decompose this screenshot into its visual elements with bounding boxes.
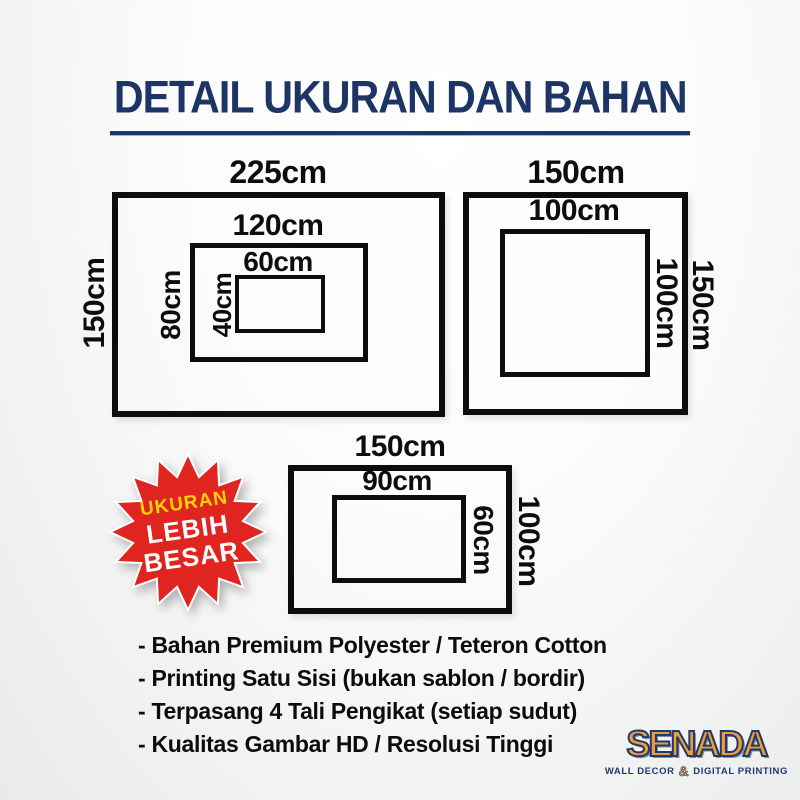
size-rect-c-inner (332, 495, 466, 583)
size-label-c-outer-width: 150cm (355, 432, 446, 462)
size-rect-b-inner (500, 229, 650, 377)
title-wrap: DETAIL UKURAN DAN BAHAN (0, 74, 800, 133)
brand-logo-tagline: WALL DECOR & DIGITAL PRINTING (605, 764, 788, 778)
size-label-b-inner-width: 100cm (529, 196, 620, 226)
size-label-b-outer-height: 150cm (687, 260, 717, 351)
page-title: DETAIL UKURAN DAN BAHAN (110, 72, 691, 136)
tagline-digital-printing: DIGITAL PRINTING (693, 766, 788, 777)
size-label-b-outer-width: 150cm (527, 156, 624, 188)
size-label-a-middle-height: 80cm (157, 270, 185, 340)
size-label-a-inner-height: 40cm (209, 273, 235, 338)
feature-list: - Bahan Premium Polyester / Teteron Cott… (138, 629, 607, 761)
size-label-a-outer-height: 150cm (80, 258, 110, 349)
ampersand-icon: & (679, 764, 690, 778)
size-label-c-inner-width: 90cm (362, 467, 432, 495)
promo-badge-text: UKURAN LEBIH BESAR (98, 442, 279, 623)
brand-logo: SENADA WALL DECOR & DIGITAL PRINTING (605, 726, 788, 778)
size-label-a-middle-width: 120cm (233, 211, 324, 241)
feature-material: - Bahan Premium Polyester / Teteron Cott… (138, 629, 607, 662)
feature-printing: - Printing Satu Sisi (bukan sablon / bor… (138, 662, 607, 695)
size-label-c-inner-height: 60cm (469, 505, 497, 575)
size-label-c-outer-height: 100cm (513, 496, 543, 587)
promo-badge: UKURAN LEBIH BESAR (108, 452, 268, 612)
tagline-wall-decor: WALL DECOR (605, 766, 675, 777)
product-size-infographic: DETAIL UKURAN DAN BAHAN 225cm 120cm 60cm… (0, 0, 800, 800)
size-label-a-inner-width: 60cm (243, 248, 313, 276)
size-rect-a-inner (235, 275, 325, 333)
size-label-a-outer-width: 225cm (229, 156, 326, 188)
feature-straps: - Terpasang 4 Tali Pengikat (setiap sudu… (138, 695, 607, 728)
feature-quality: - Kualitas Gambar HD / Resolusi Tinggi (138, 728, 607, 761)
size-label-b-inner-height: 100cm (651, 258, 681, 349)
brand-logo-wordmark: SENADA (605, 726, 788, 762)
